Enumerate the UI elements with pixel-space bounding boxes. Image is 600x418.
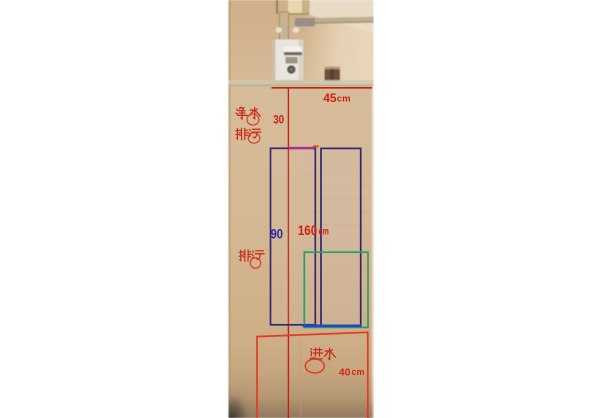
svg-text:cm: cm [352, 367, 365, 377]
svg-text:160: 160 [298, 222, 317, 238]
svg-text:90: 90 [271, 226, 284, 242]
svg-text:45: 45 [323, 91, 337, 105]
svg-text:cm: cm [337, 93, 351, 104]
svg-text:40: 40 [339, 366, 351, 378]
svg-text:cm: cm [319, 227, 329, 238]
svg-text:30: 30 [273, 114, 284, 126]
